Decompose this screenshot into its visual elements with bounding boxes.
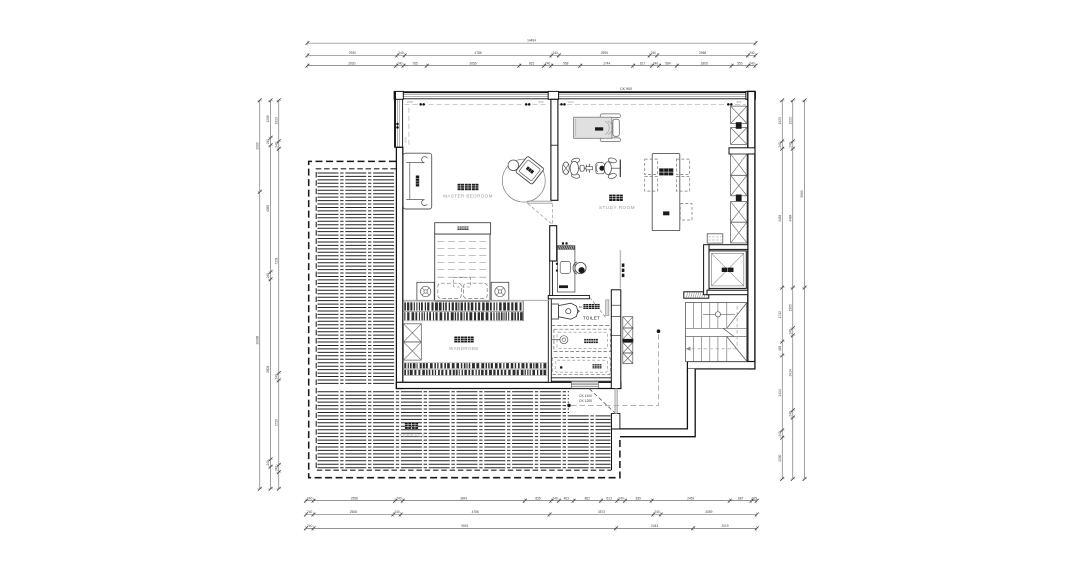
svg-text:240: 240 (266, 139, 270, 145)
svg-text:240: 240 (552, 496, 558, 500)
svg-text:5808: 5808 (266, 366, 270, 373)
svg-text:4484: 4484 (788, 214, 792, 221)
svg-text:240: 240 (274, 374, 278, 380)
svg-text:550: 550 (737, 61, 743, 65)
svg-text:1744: 1744 (603, 61, 610, 65)
svg-text:3573: 3573 (598, 510, 605, 514)
svg-text:240: 240 (274, 142, 278, 148)
svg-text:1208: 1208 (266, 115, 270, 122)
svg-text:835: 835 (535, 496, 541, 500)
svg-text:MASTER BEDROOM: MASTER BEDROOM (443, 194, 493, 199)
svg-text:4484: 4484 (778, 214, 782, 221)
svg-text:TERRACE: TERRACE (400, 433, 426, 438)
svg-text:5069: 5069 (800, 190, 804, 197)
svg-text:TOILET: TOILET (583, 316, 600, 321)
svg-text:10988: 10988 (255, 336, 259, 345)
svg-text:2019: 2019 (721, 524, 728, 528)
svg-text:240: 240 (545, 61, 551, 65)
svg-text:240: 240 (749, 51, 755, 55)
svg-text:240: 240 (618, 496, 624, 500)
svg-text:CK 1200: CK 1200 (579, 399, 592, 403)
svg-text:1330: 1330 (778, 455, 782, 462)
svg-text:STUDY ROOM: STUDY ROOM (599, 205, 635, 210)
svg-text:240: 240 (398, 51, 404, 55)
svg-text:14494: 14494 (527, 39, 536, 43)
svg-text:240: 240 (266, 460, 270, 466)
svg-text:4088: 4088 (266, 205, 270, 212)
svg-text:850: 850 (539, 100, 544, 104)
svg-text:513: 513 (607, 496, 613, 500)
svg-text:2930: 2930 (349, 51, 356, 55)
svg-text:2930: 2930 (348, 61, 355, 65)
svg-text:S=: S= (579, 305, 583, 309)
svg-text:240: 240 (778, 431, 782, 437)
svg-text:2903: 2903 (255, 142, 259, 149)
svg-text:2414: 2414 (788, 369, 792, 376)
svg-text:240: 240 (274, 466, 278, 472)
svg-text:4786: 4786 (475, 51, 482, 55)
svg-text:448: 448 (778, 346, 782, 352)
svg-text:1323: 1323 (778, 117, 782, 124)
svg-text:4359: 4359 (705, 510, 712, 514)
svg-text:240: 240 (307, 510, 313, 514)
svg-text:240: 240 (307, 496, 313, 500)
svg-text:240: 240 (553, 51, 559, 55)
svg-text:240: 240 (397, 61, 403, 65)
svg-text:463: 463 (564, 496, 570, 500)
svg-text:1805: 1805 (701, 61, 708, 65)
svg-text:CK 900: CK 900 (620, 87, 632, 91)
svg-text:240: 240 (788, 329, 792, 335)
svg-text:240: 240 (396, 496, 402, 500)
svg-text:2414: 2414 (778, 389, 782, 396)
svg-text:1100: 1100 (567, 100, 573, 104)
svg-text:CK 1100: CK 1100 (579, 394, 592, 398)
svg-text:2568: 2568 (350, 510, 357, 514)
svg-text:815: 815 (529, 61, 535, 65)
svg-text:2959: 2959 (601, 51, 608, 55)
svg-text:240: 240 (749, 61, 755, 65)
svg-text:240: 240 (788, 411, 792, 417)
svg-text:9591: 9591 (461, 524, 468, 528)
svg-text:2443: 2443 (651, 524, 658, 528)
svg-text:7231: 7231 (274, 257, 278, 264)
svg-text:862: 862 (585, 496, 591, 500)
svg-text:2968: 2968 (699, 51, 706, 55)
svg-text:1323: 1323 (788, 117, 792, 124)
svg-text:2568: 2568 (351, 496, 358, 500)
svg-text:2550: 2550 (407, 100, 414, 104)
svg-text:1742: 1742 (778, 311, 782, 318)
svg-text:WARDROBE: WARDROBE (449, 346, 479, 351)
svg-text:240: 240 (307, 524, 313, 528)
svg-text:839: 839 (636, 496, 642, 500)
svg-text:240: 240 (651, 51, 657, 55)
svg-text:1305: 1305 (788, 304, 792, 311)
svg-text:165: 165 (752, 496, 758, 500)
svg-text:2550: 2550 (404, 136, 408, 143)
svg-text:240: 240 (778, 142, 782, 148)
svg-text:584: 584 (665, 61, 671, 65)
svg-text:765: 765 (412, 61, 418, 65)
svg-text:2459: 2459 (687, 496, 694, 500)
svg-text:850: 850 (737, 100, 742, 104)
svg-text:240: 240 (653, 61, 659, 65)
svg-text:4786: 4786 (472, 510, 479, 514)
svg-text:240: 240 (788, 142, 792, 148)
svg-text:617: 617 (640, 61, 646, 65)
svg-text:240: 240 (266, 273, 270, 279)
svg-text:240: 240 (654, 510, 660, 514)
svg-text:3056: 3056 (469, 61, 476, 65)
svg-text:958: 958 (563, 61, 569, 65)
svg-text:687: 687 (738, 496, 744, 500)
svg-text:3841: 3841 (460, 496, 467, 500)
svg-text:2720: 2720 (274, 419, 278, 426)
svg-text:1323: 1323 (274, 117, 278, 124)
svg-text:240: 240 (394, 510, 400, 514)
